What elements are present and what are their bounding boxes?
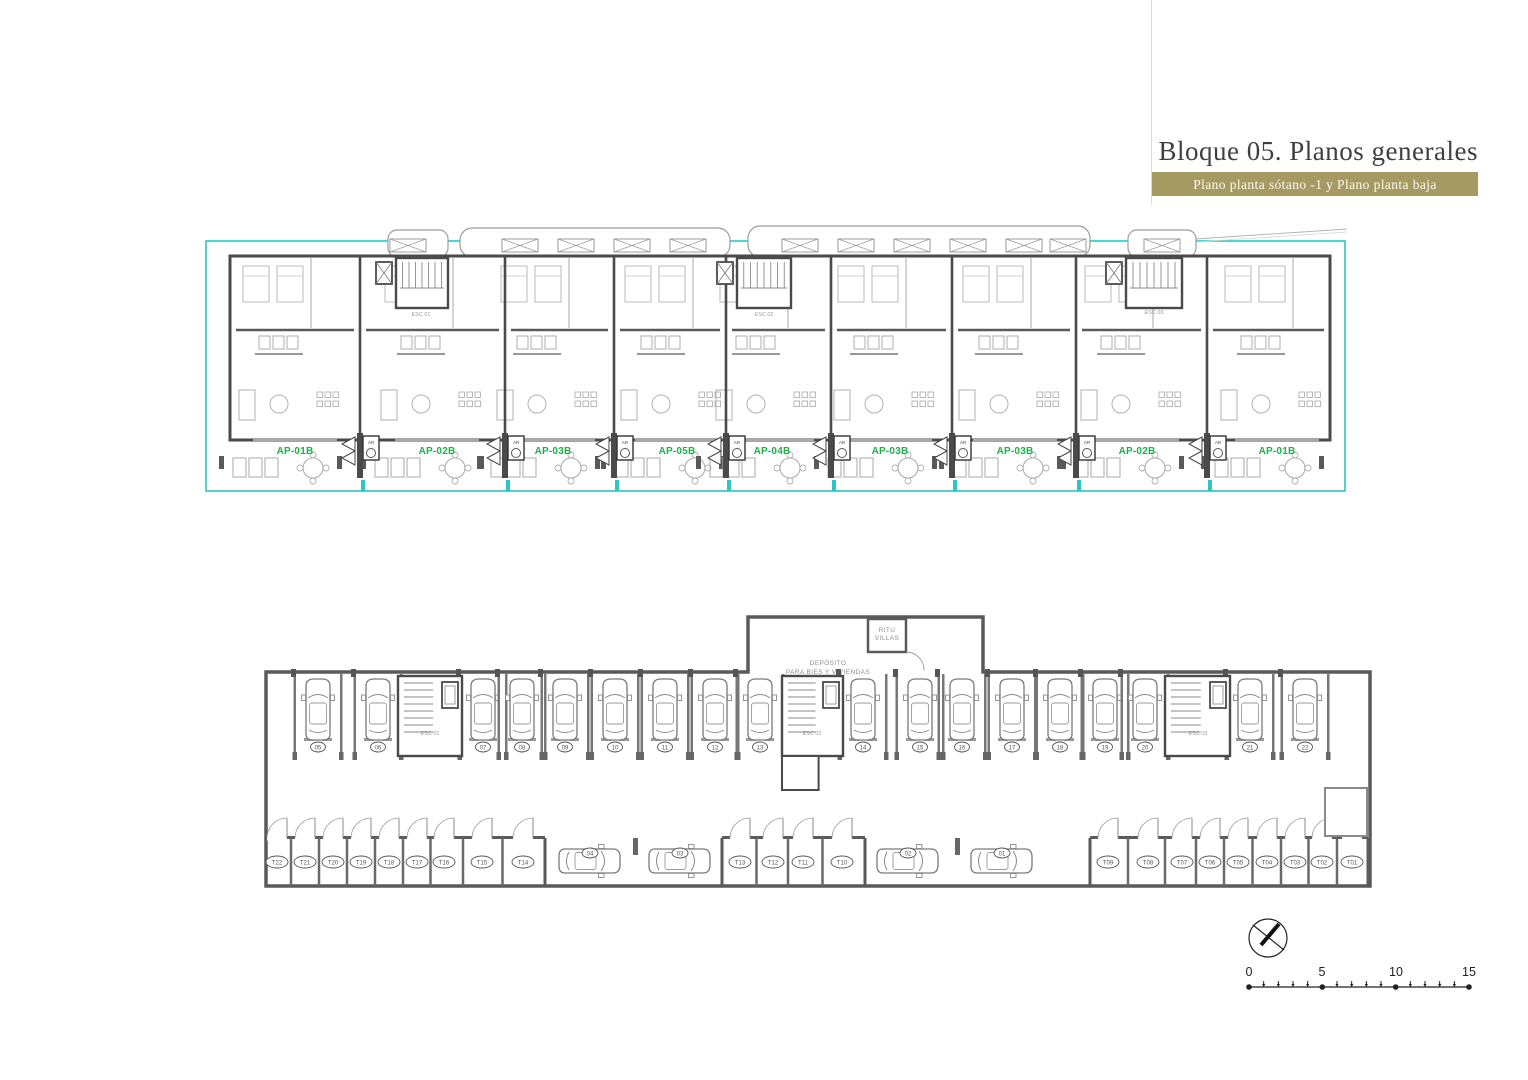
basement-plan: RITU VILLAS DEPÓSITO PARA BIES Y VIVIEND… bbox=[255, 605, 1375, 897]
apartment-label: AP-03B bbox=[997, 446, 1034, 457]
parking-number: 12 bbox=[712, 746, 719, 752]
parking-number: 15 bbox=[917, 746, 924, 752]
stair-label-esc03: ESC 03 bbox=[1145, 310, 1164, 316]
storage-label: T11 bbox=[798, 861, 809, 867]
ritu-room-label-2: VILLAS bbox=[875, 635, 900, 642]
apartment-label: AP-01B bbox=[277, 446, 314, 457]
parking-number: 17 bbox=[1009, 746, 1016, 752]
parking-number: 22 bbox=[1302, 746, 1309, 752]
storage-label: T18 bbox=[384, 861, 395, 867]
parking-number: 18 bbox=[1057, 746, 1064, 752]
parking-number: 05 bbox=[315, 746, 322, 752]
storage-label: T19 bbox=[356, 861, 367, 867]
storage-label: T21 bbox=[300, 861, 311, 867]
parking-number: 16 bbox=[959, 746, 966, 752]
apartment-label: AP-02B bbox=[1119, 446, 1156, 457]
ground-floor-plan: ESC 01 ESC 02 ESC 03 ARARARARARARARAR AP… bbox=[200, 222, 1352, 504]
scale-label-15: 15 bbox=[1462, 965, 1476, 979]
floor-plan-sheet: Bloque 05. Planos generales Plano planta… bbox=[0, 0, 1528, 1080]
terrace-closet-label: AR bbox=[960, 440, 967, 445]
parking-number: 10 bbox=[612, 746, 619, 752]
sheet-subtitle: Plano planta sótano -1 y Plano planta ba… bbox=[1193, 177, 1437, 192]
apartment-label: AP-05B bbox=[659, 446, 696, 457]
sheet-subtitle-bar: Plano planta sótano -1 y Plano planta ba… bbox=[1152, 172, 1478, 196]
storage-label: T06 bbox=[1205, 861, 1216, 867]
north-arrow-icon bbox=[1240, 912, 1300, 968]
storage-label: T03 bbox=[1290, 861, 1301, 867]
stair-label-esc02: ESC 02 bbox=[755, 312, 774, 318]
terrace-closet-label: AR bbox=[839, 440, 846, 445]
storage-label: T07 bbox=[1177, 861, 1188, 867]
terrace-closet-label: AR bbox=[513, 440, 520, 445]
apartment-label: AP-04B bbox=[754, 446, 791, 457]
ramp-area bbox=[1325, 788, 1367, 836]
scale-label-10: 10 bbox=[1389, 965, 1403, 979]
garage-stair-label-esc01: ESC 01 bbox=[421, 731, 440, 737]
parking-number: 20 bbox=[1142, 746, 1149, 752]
garage-stair-label-esc03: ESC 03 bbox=[1189, 731, 1208, 737]
storage-label: T16 bbox=[439, 861, 450, 867]
terrace-closet-label: AR bbox=[368, 440, 375, 445]
parking-number: 19 bbox=[1102, 746, 1109, 752]
parking-number: 06 bbox=[375, 746, 382, 752]
parking-number: 09 bbox=[562, 746, 569, 752]
storage-label: T04 bbox=[1262, 861, 1273, 867]
apartment-label: AP-03B bbox=[872, 446, 909, 457]
parking-number: 14 bbox=[860, 746, 867, 752]
parking-number: 01 bbox=[999, 852, 1006, 858]
storage-label: T20 bbox=[328, 861, 339, 867]
storage-label: T14 bbox=[518, 861, 529, 867]
storage-label: T05 bbox=[1233, 861, 1244, 867]
storage-label: T01 bbox=[1347, 861, 1358, 867]
storage-label: T08 bbox=[1143, 861, 1154, 867]
terrace-closet-label: AR bbox=[622, 440, 629, 445]
parking-number: 21 bbox=[1247, 746, 1254, 752]
parking-number: 03 bbox=[677, 852, 684, 858]
stair-label-esc01: ESC 01 bbox=[412, 312, 431, 318]
parking-number: 13 bbox=[757, 746, 764, 752]
deposit-room-label-1: DEPÓSITO bbox=[810, 658, 847, 667]
sheet-title: Bloque 05. Planos generales bbox=[578, 136, 1478, 167]
terrace-closet-label: AR bbox=[734, 440, 741, 445]
ritu-room-label-1: RITU bbox=[879, 627, 896, 634]
terrace-closet-label: AR bbox=[1215, 440, 1222, 445]
garage-stair-label-esc02: ESC 02 bbox=[803, 731, 822, 737]
parking-number: 08 bbox=[519, 746, 526, 752]
parking-number: 02 bbox=[905, 852, 912, 858]
apartment-label: AP-02B bbox=[419, 446, 456, 457]
parking-number: 04 bbox=[587, 852, 594, 858]
scale-label-5: 5 bbox=[1319, 965, 1326, 979]
scale-bar: 0 5 10 15 bbox=[1238, 962, 1488, 1006]
terrace-closet-label: AR bbox=[1084, 440, 1091, 445]
parking-number: 11 bbox=[662, 746, 669, 752]
storage-label: T15 bbox=[477, 861, 488, 867]
storage-label: T13 bbox=[735, 861, 746, 867]
storage-label: T12 bbox=[768, 861, 779, 867]
parking-number: 07 bbox=[480, 746, 487, 752]
storage-label: T22 bbox=[272, 861, 283, 867]
apartment-label: AP-03B bbox=[535, 446, 572, 457]
apartment-label: AP-01B bbox=[1259, 446, 1296, 457]
storage-label: T02 bbox=[1317, 861, 1328, 867]
scale-label-0: 0 bbox=[1246, 965, 1253, 979]
storage-label: T10 bbox=[837, 861, 848, 867]
storage-label: T09 bbox=[1103, 861, 1114, 867]
storage-label: T17 bbox=[412, 861, 423, 867]
